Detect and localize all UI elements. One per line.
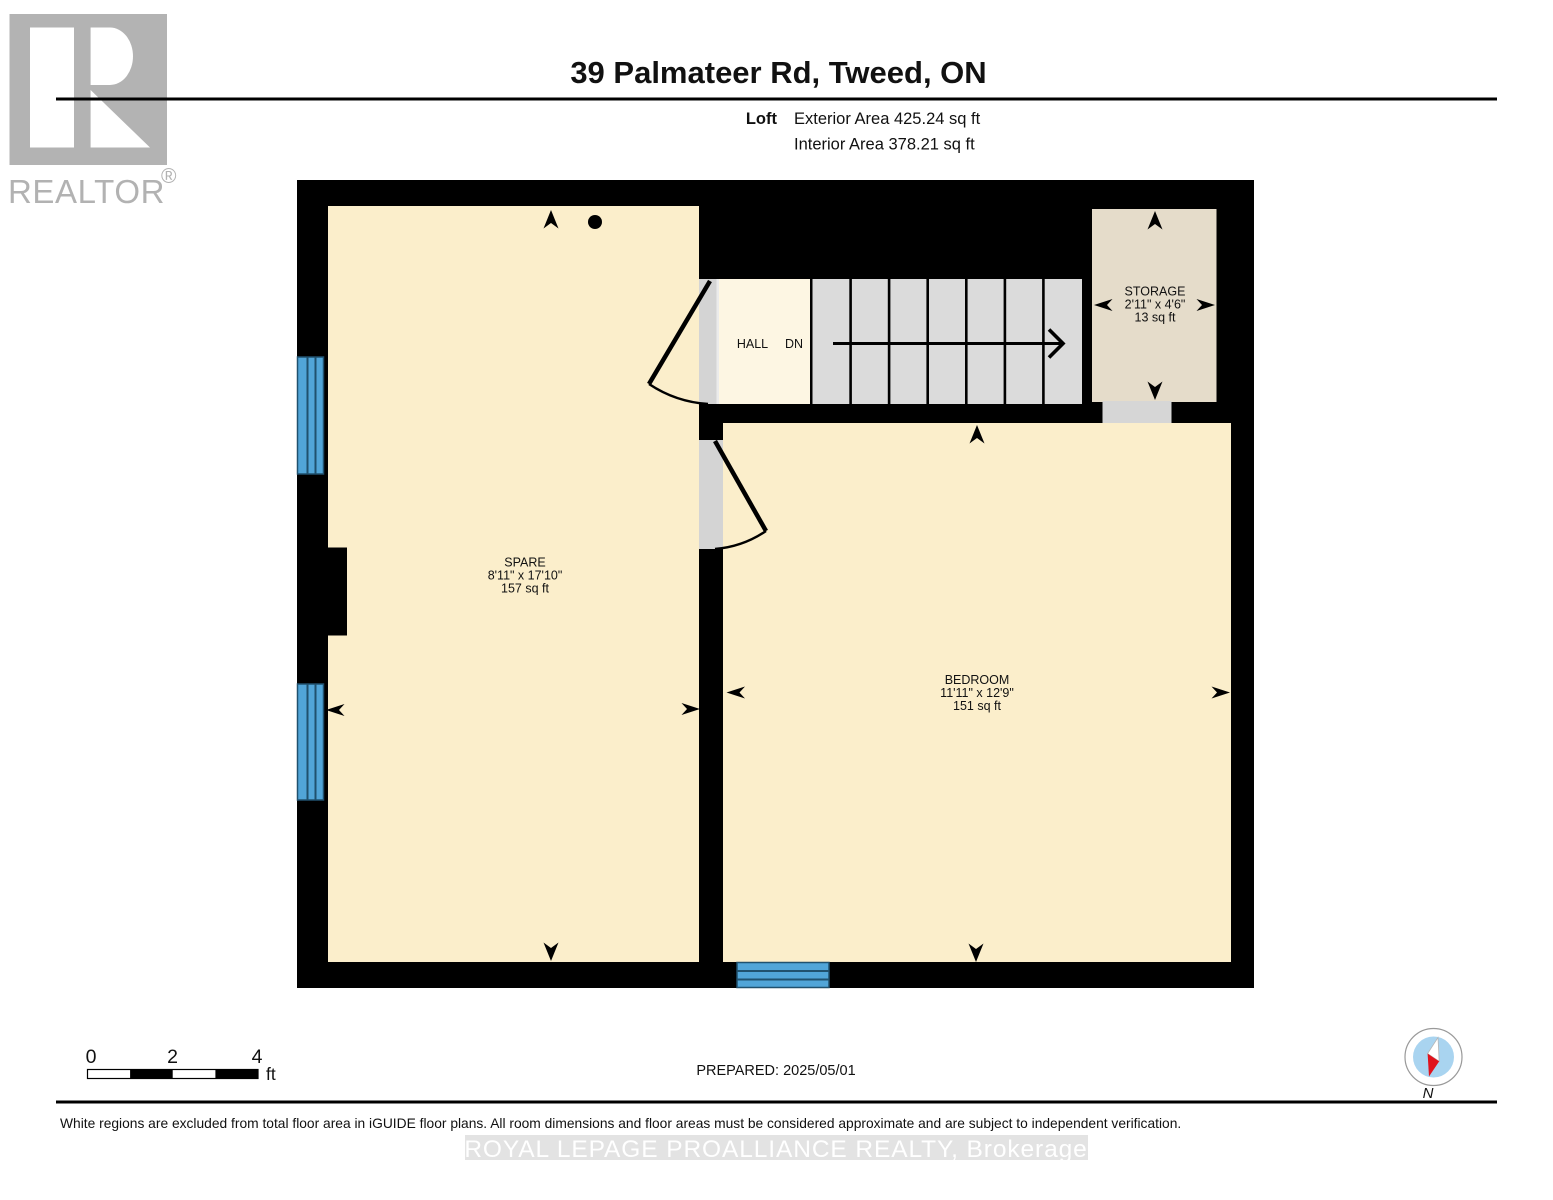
svg-text:STORAGE: STORAGE	[1125, 285, 1186, 299]
svg-text:2: 2	[167, 1046, 178, 1068]
svg-text:13 sq ft: 13 sq ft	[1135, 311, 1177, 325]
svg-text:0: 0	[86, 1046, 97, 1068]
svg-text:®: ®	[161, 165, 177, 188]
svg-text:PREPARED: 2025/05/01: PREPARED: 2025/05/01	[696, 1063, 855, 1079]
svg-text:2'11" x 4'6": 2'11" x 4'6"	[1125, 298, 1186, 312]
svg-text:Loft: Loft	[746, 110, 778, 128]
svg-text:157 sq ft: 157 sq ft	[501, 582, 549, 596]
svg-text:REALTOR: REALTOR	[8, 173, 165, 210]
svg-text:ft: ft	[266, 1064, 276, 1084]
svg-text:ROYAL LEPAGE PROALLIANCE REALT: ROYAL LEPAGE PROALLIANCE REALTY, Brokera…	[464, 1136, 1087, 1163]
svg-text:SPARE: SPARE	[504, 556, 545, 570]
svg-text:Interior Area 378.21 sq ft: Interior Area 378.21 sq ft	[794, 136, 975, 154]
svg-text:White regions are excluded fro: White regions are excluded from total fl…	[60, 1116, 1181, 1131]
svg-text:DN: DN	[785, 337, 803, 351]
svg-text:11'11" x 12'9": 11'11" x 12'9"	[940, 686, 1014, 700]
svg-text:8'11" x 17'10": 8'11" x 17'10"	[488, 569, 563, 583]
svg-text:HALL: HALL	[737, 337, 768, 351]
svg-text:39 Palmateer Rd, Tweed, ON: 39 Palmateer Rd, Tweed, ON	[570, 55, 986, 90]
svg-text:BEDROOM: BEDROOM	[945, 673, 1010, 687]
svg-text:4: 4	[252, 1046, 263, 1068]
svg-text:151 sq ft: 151 sq ft	[953, 699, 1001, 713]
svg-text:Exterior Area 425.24 sq ft: Exterior Area 425.24 sq ft	[794, 110, 981, 128]
svg-text:N: N	[1423, 1085, 1434, 1102]
